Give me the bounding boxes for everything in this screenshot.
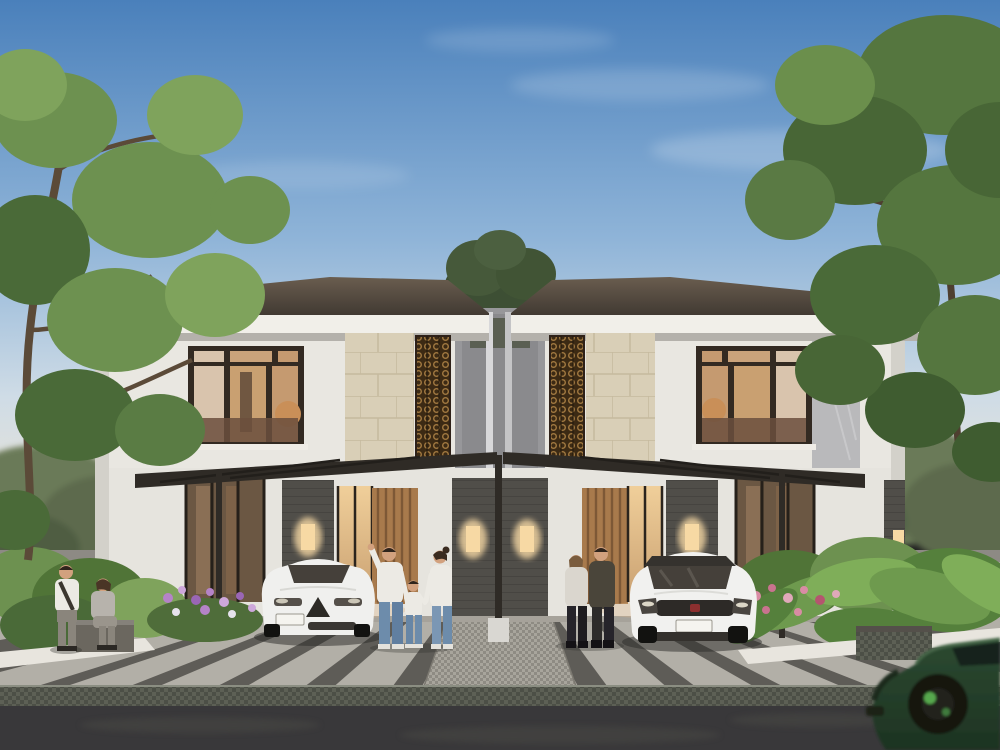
suv-roof	[644, 556, 736, 566]
left-bronze-screen	[416, 336, 450, 460]
canopy-post	[495, 455, 502, 625]
sedan-plate	[276, 614, 304, 625]
right-bronze-screen	[550, 336, 584, 460]
white-sedan	[254, 559, 382, 646]
wall-sconce	[301, 524, 315, 550]
downspout	[505, 312, 512, 470]
wall-sconce	[685, 524, 699, 550]
left-stone-cladding	[345, 333, 414, 462]
render-canvas: Photorealistic dusk rendering of a moder…	[0, 0, 1000, 750]
cobble-curb	[0, 686, 1000, 708]
sedan-windshield	[288, 565, 350, 583]
right-stone-cladding	[586, 333, 655, 462]
duplex-house-render: Photorealistic dusk rendering of a moder…	[0, 0, 1000, 750]
couple-man	[589, 547, 615, 648]
suv-plate	[676, 620, 712, 632]
street	[0, 686, 1000, 750]
honda-badge	[690, 604, 700, 612]
wall-sconce	[520, 526, 534, 552]
wall-sconce	[466, 526, 480, 552]
